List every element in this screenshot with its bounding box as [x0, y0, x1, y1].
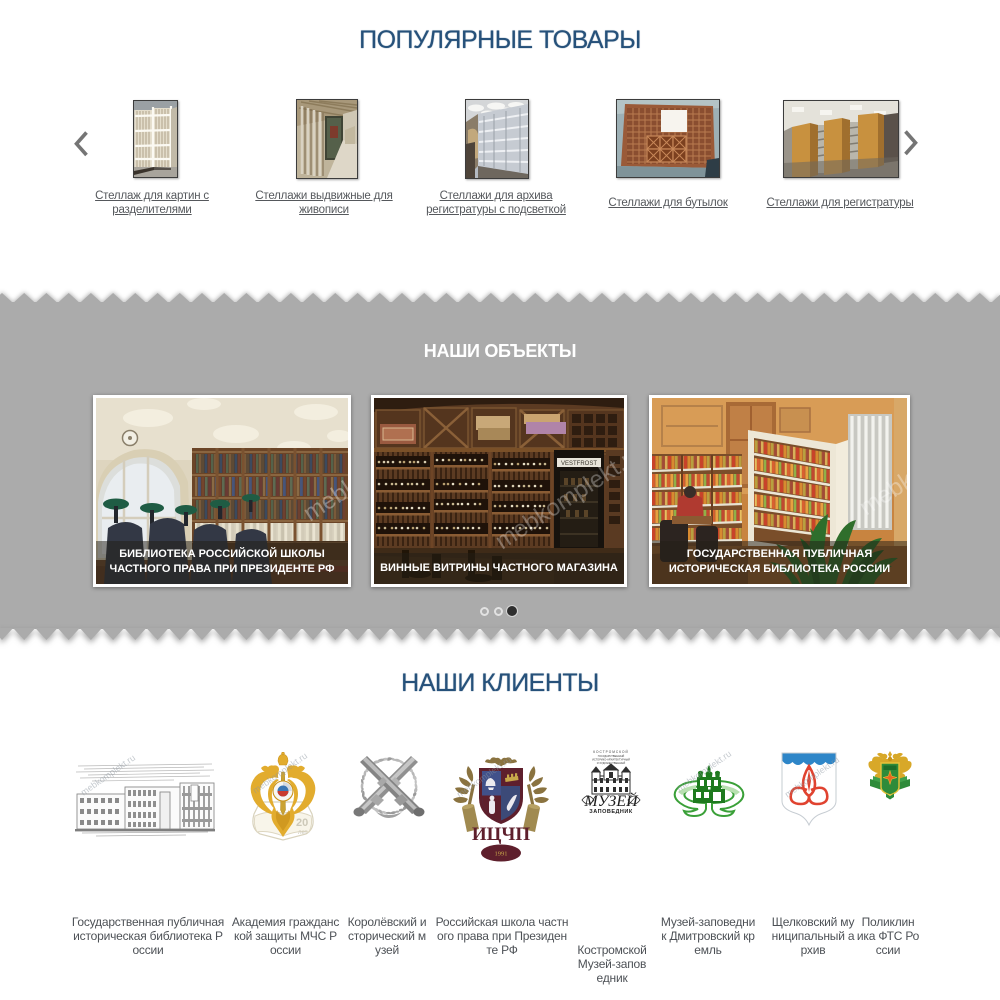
svg-text:КОСТРОМСКОЙ: КОСТРОМСКОЙ: [593, 750, 629, 754]
svg-text:ИЦЧП: ИЦЧП: [472, 824, 531, 845]
svg-text:ГОСУДАРСТВЕННЫЙ: ГОСУДАРСТВЕННЫЙ: [598, 754, 625, 758]
svg-text:ЗАПОВЕДНИК: ЗАПОВЕДНИК: [589, 809, 633, 815]
svg-text:20: 20: [296, 817, 308, 829]
svg-text:лет: лет: [298, 830, 308, 836]
svg-text:ИСТОРИКО-АРХИТЕКТУРНЫЙ: ИСТОРИКО-АРХИТЕКТУРНЫЙ: [592, 758, 630, 762]
svg-text:1991: 1991: [495, 851, 508, 858]
svg-text:МУЗЕЙ: МУЗЕЙ: [583, 791, 639, 810]
